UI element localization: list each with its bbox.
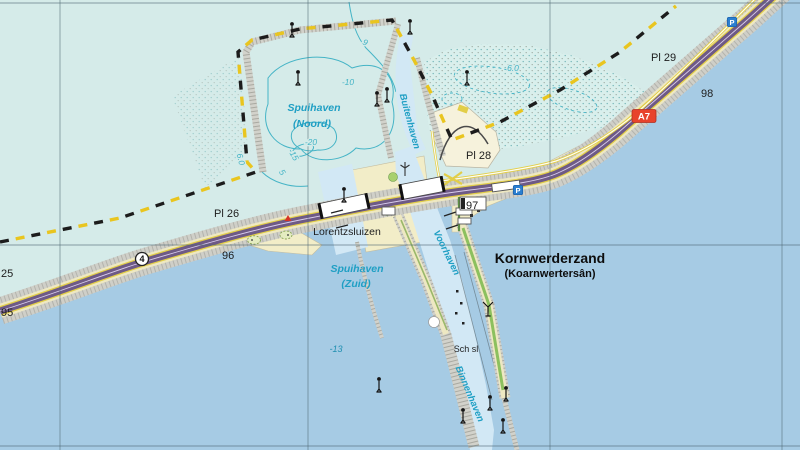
regional-road-shield: 4 [136,253,149,266]
map-label: Pl 26 [214,208,239,220]
map-label: 97 [466,200,478,212]
map-label: Spuihaven [330,263,383,275]
map-label: 25 [1,268,13,280]
motorway-shield-a7: A7 [632,110,656,123]
map-label: (Koarnwertersân) [504,268,595,280]
map-label: 98 [701,88,713,100]
map-label: 6.0 [507,63,519,73]
map-label: 6.0 [235,152,248,166]
chart-canvas: A74PP Spuihaven(Noord)Spuihaven(Zuid)Bui… [0,0,800,450]
map-label: 96 [222,250,234,262]
map-label: Spuihaven [287,102,340,114]
nautical-chart[interactable]: A74PP Spuihaven(Noord)Spuihaven(Zuid)Bui… [0,0,800,450]
map-label: Kornwerderzand [495,250,605,266]
svg-text:P: P [515,186,520,195]
map-label: -20 [305,137,318,147]
beacon-icon [407,19,412,34]
map-label: -13 [329,344,342,354]
map-label: Pl 29 [651,52,676,64]
map-label: 5 [277,167,288,177]
map-label: (Zuid) [341,278,371,290]
svg-text:A7: A7 [638,112,650,123]
svg-text:4: 4 [139,254,144,264]
map-label: 9 [361,37,370,48]
map-label: Sch sl [454,344,479,354]
svg-text:P: P [729,18,734,27]
map-label: Buitenhaven [397,92,422,150]
map-label: Pl 28 [466,150,491,162]
beacon-icon [295,70,300,85]
map-label: Lorentzsluizen [313,226,381,238]
map-label: (Noord) [293,118,331,130]
beacon-icon [384,87,389,102]
parking-icon: P [727,17,736,27]
map-label: 95 [1,307,13,319]
map-label: -10 [342,77,355,87]
parking-icon: P [513,185,522,195]
